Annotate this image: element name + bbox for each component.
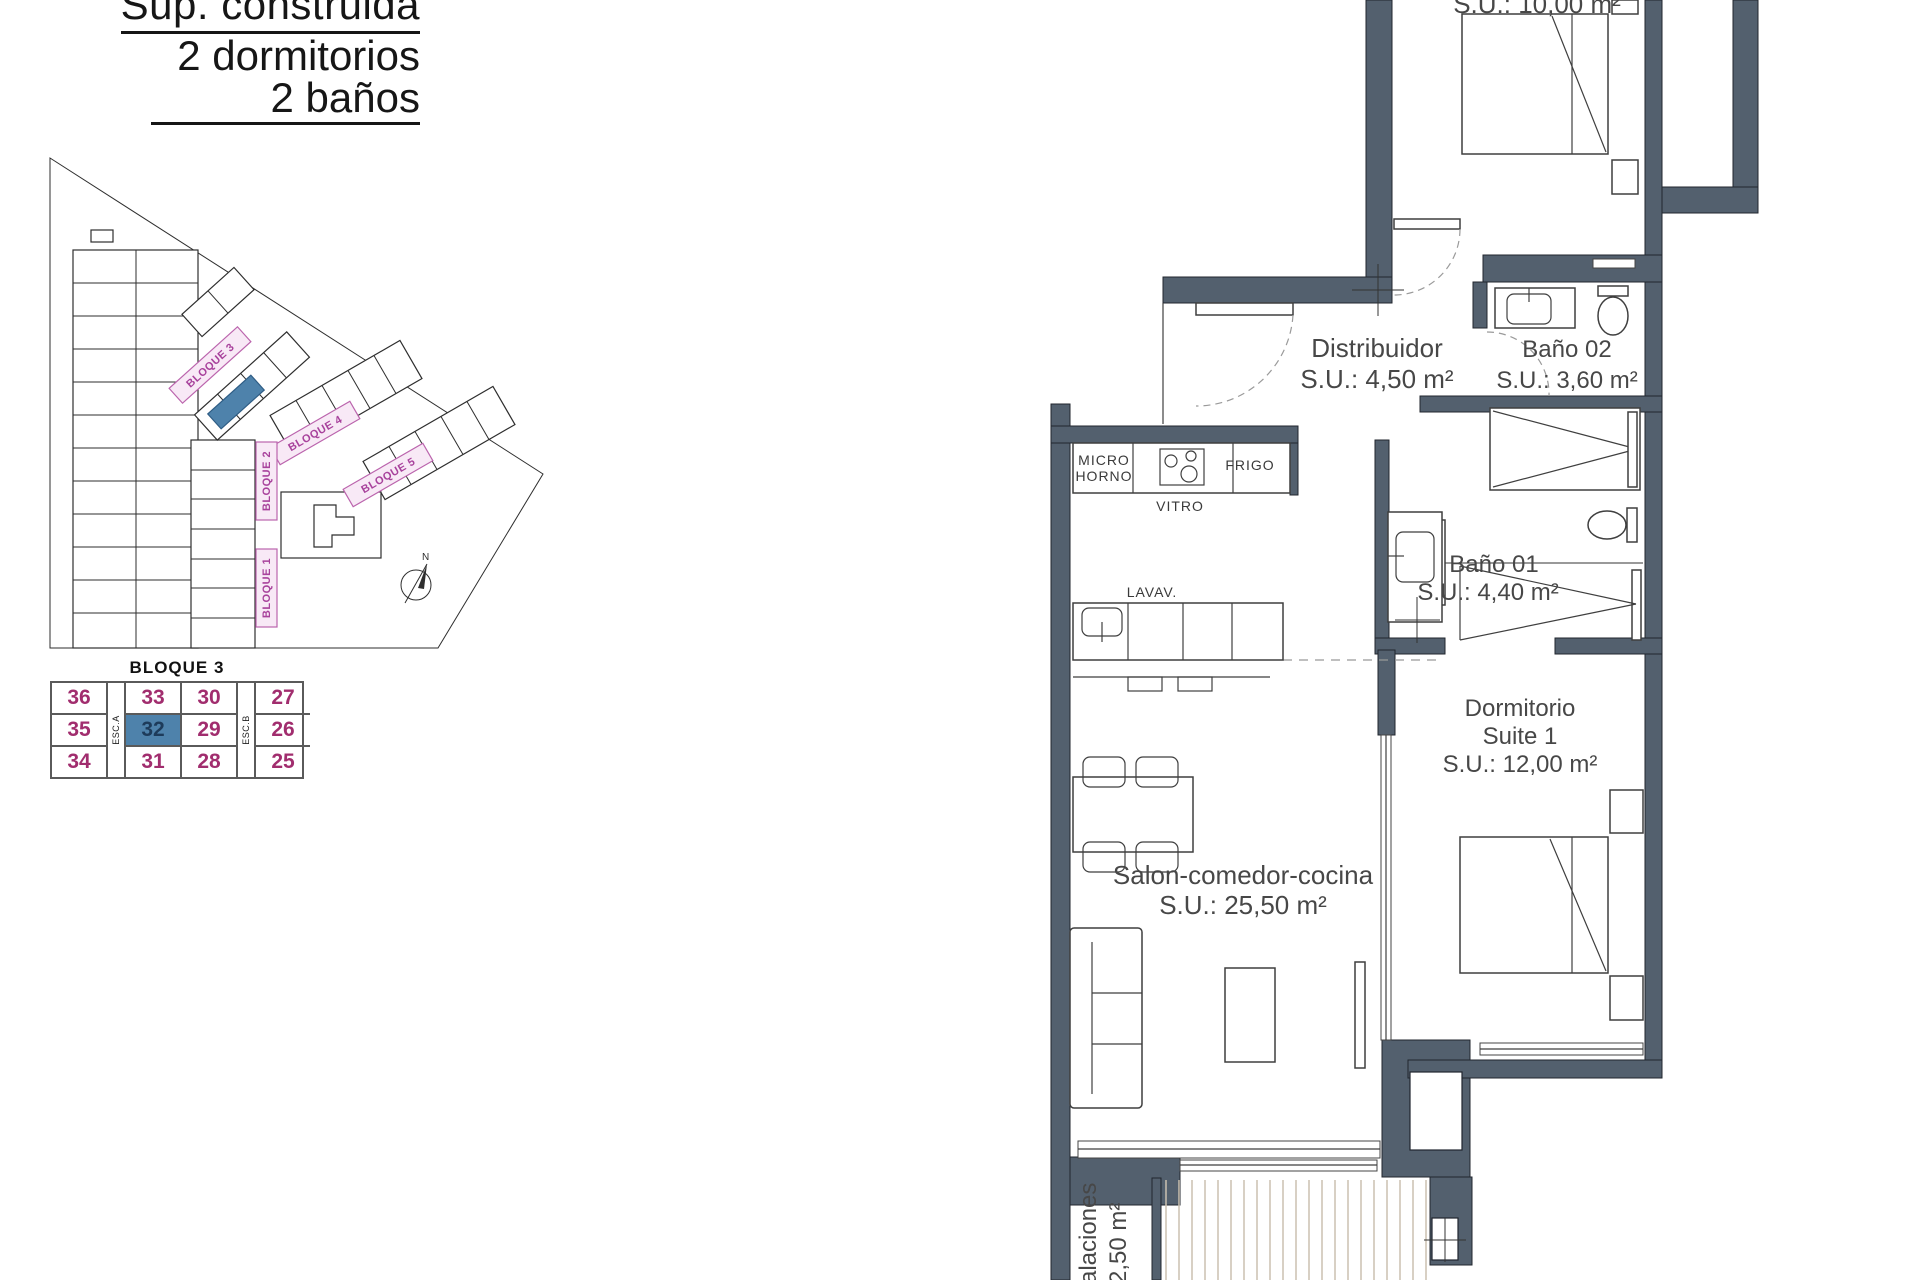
bedroom2-door: [1394, 219, 1460, 295]
suite-area-label: S.U.: 12,00 m²: [1443, 751, 1598, 778]
floorplan-page: Sup. construida 2 dormitorios 2 baños: [0, 0, 1920, 1280]
micro-label: MICRO: [1078, 452, 1130, 468]
living-furniture: [1070, 757, 1365, 1108]
lavav-label: LAVAV.: [1127, 584, 1178, 600]
bedroom2-area-label: S.U.: 10,00 m²: [1453, 0, 1621, 19]
distribuidor-label: Distribuidor: [1311, 333, 1443, 363]
apartment-floor-plan: S.U.: 10,00 m² Distribuidor S.U.: 4,50 m…: [0, 0, 1920, 1280]
living-suite-sliding-door: [1381, 735, 1391, 1040]
bano01-area-label: S.U.: 4,40 m²: [1417, 579, 1558, 606]
instalaciones-label: alaciones: [1075, 1183, 1102, 1280]
kitchen-island: [1073, 603, 1283, 691]
bano01-label: Baño 01: [1449, 551, 1538, 578]
suite-label-2: Suite 1: [1483, 723, 1558, 750]
bedroom2-furniture: [1462, 0, 1638, 194]
bano02-area-label: S.U.: 3,60 m²: [1496, 367, 1637, 394]
salon-label: Salon-comedor-cocina: [1113, 860, 1374, 890]
salon-area-label: S.U.: 25,50 m²: [1159, 890, 1327, 920]
entry-door: [1196, 303, 1293, 406]
instalaciones-area-label: 2,50 m²: [1105, 1203, 1132, 1280]
suite-label-1: Dormitorio: [1465, 695, 1576, 722]
bano02-label: Baño 02: [1522, 336, 1611, 363]
suite-furniture: [1460, 790, 1643, 1055]
distribuidor-area-label: S.U.: 4,50 m²: [1300, 364, 1453, 394]
vitro-label: VITRO: [1156, 498, 1204, 514]
horno-label: HORNO: [1075, 468, 1132, 484]
frigo-label: FRIGO: [1225, 457, 1274, 473]
